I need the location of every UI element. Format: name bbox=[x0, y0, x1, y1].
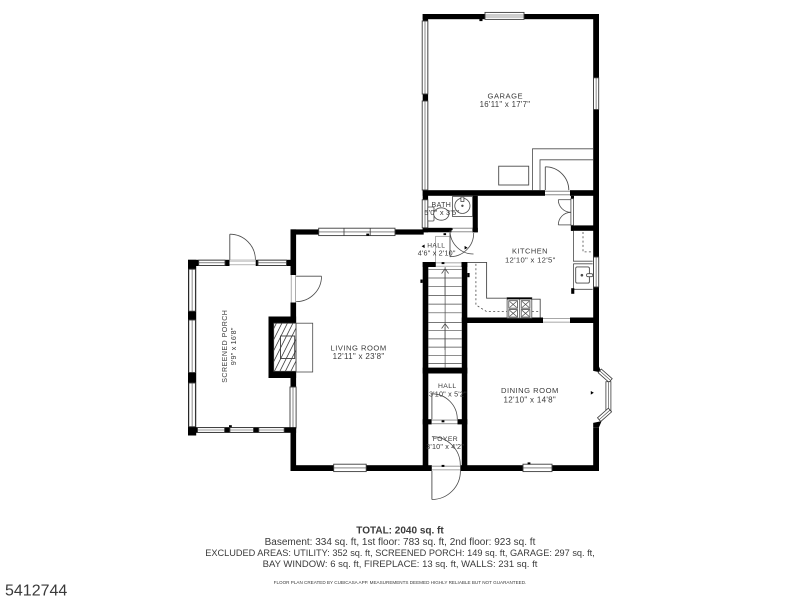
svg-text:SCREENED PORCH: SCREENED PORCH bbox=[222, 310, 229, 383]
svg-text:Basement: 334 sq. ft, 1st floo: Basement: 334 sq. ft, 1st floor: 783 sq.… bbox=[265, 537, 536, 548]
svg-text:4'6" x 2'10": 4'6" x 2'10" bbox=[418, 249, 456, 258]
svg-text:5'0" x 3'5": 5'0" x 3'5" bbox=[424, 208, 459, 217]
svg-text:KITCHEN: KITCHEN bbox=[512, 246, 548, 255]
svg-text:3'10" x 4'2": 3'10" x 4'2" bbox=[426, 442, 464, 451]
svg-text:FLOOR PLAN CREATED BY CUBICASA: FLOOR PLAN CREATED BY CUBICASA APP. MEAS… bbox=[274, 580, 527, 585]
svg-text:12'10" x 14'8": 12'10" x 14'8" bbox=[504, 395, 557, 404]
svg-text:12'10" x 12'5": 12'10" x 12'5" bbox=[505, 255, 556, 264]
svg-text:TOTAL: 2040 sq. ft: TOTAL: 2040 sq. ft bbox=[356, 526, 444, 537]
svg-text:EXCLUDED AREAS: UTILITY: 352 s: EXCLUDED AREAS: UTILITY: 352 sq. ft, SCR… bbox=[205, 548, 595, 558]
svg-text:BAY WINDOW: 6 sq. ft, FIREPLAC: BAY WINDOW: 6 sq. ft, FIREPLACE: 13 sq. … bbox=[263, 559, 538, 570]
svg-text:DINING ROOM: DINING ROOM bbox=[501, 386, 559, 395]
svg-text:3'10" x 5'2": 3'10" x 5'2" bbox=[429, 389, 467, 398]
svg-text:12'11" x 23'8": 12'11" x 23'8" bbox=[333, 352, 385, 361]
svg-text:5412744: 5412744 bbox=[5, 583, 67, 600]
svg-text:9'9" x 16'8": 9'9" x 16'8" bbox=[229, 327, 238, 365]
svg-text:16'11" x 17'7": 16'11" x 17'7" bbox=[480, 100, 531, 109]
